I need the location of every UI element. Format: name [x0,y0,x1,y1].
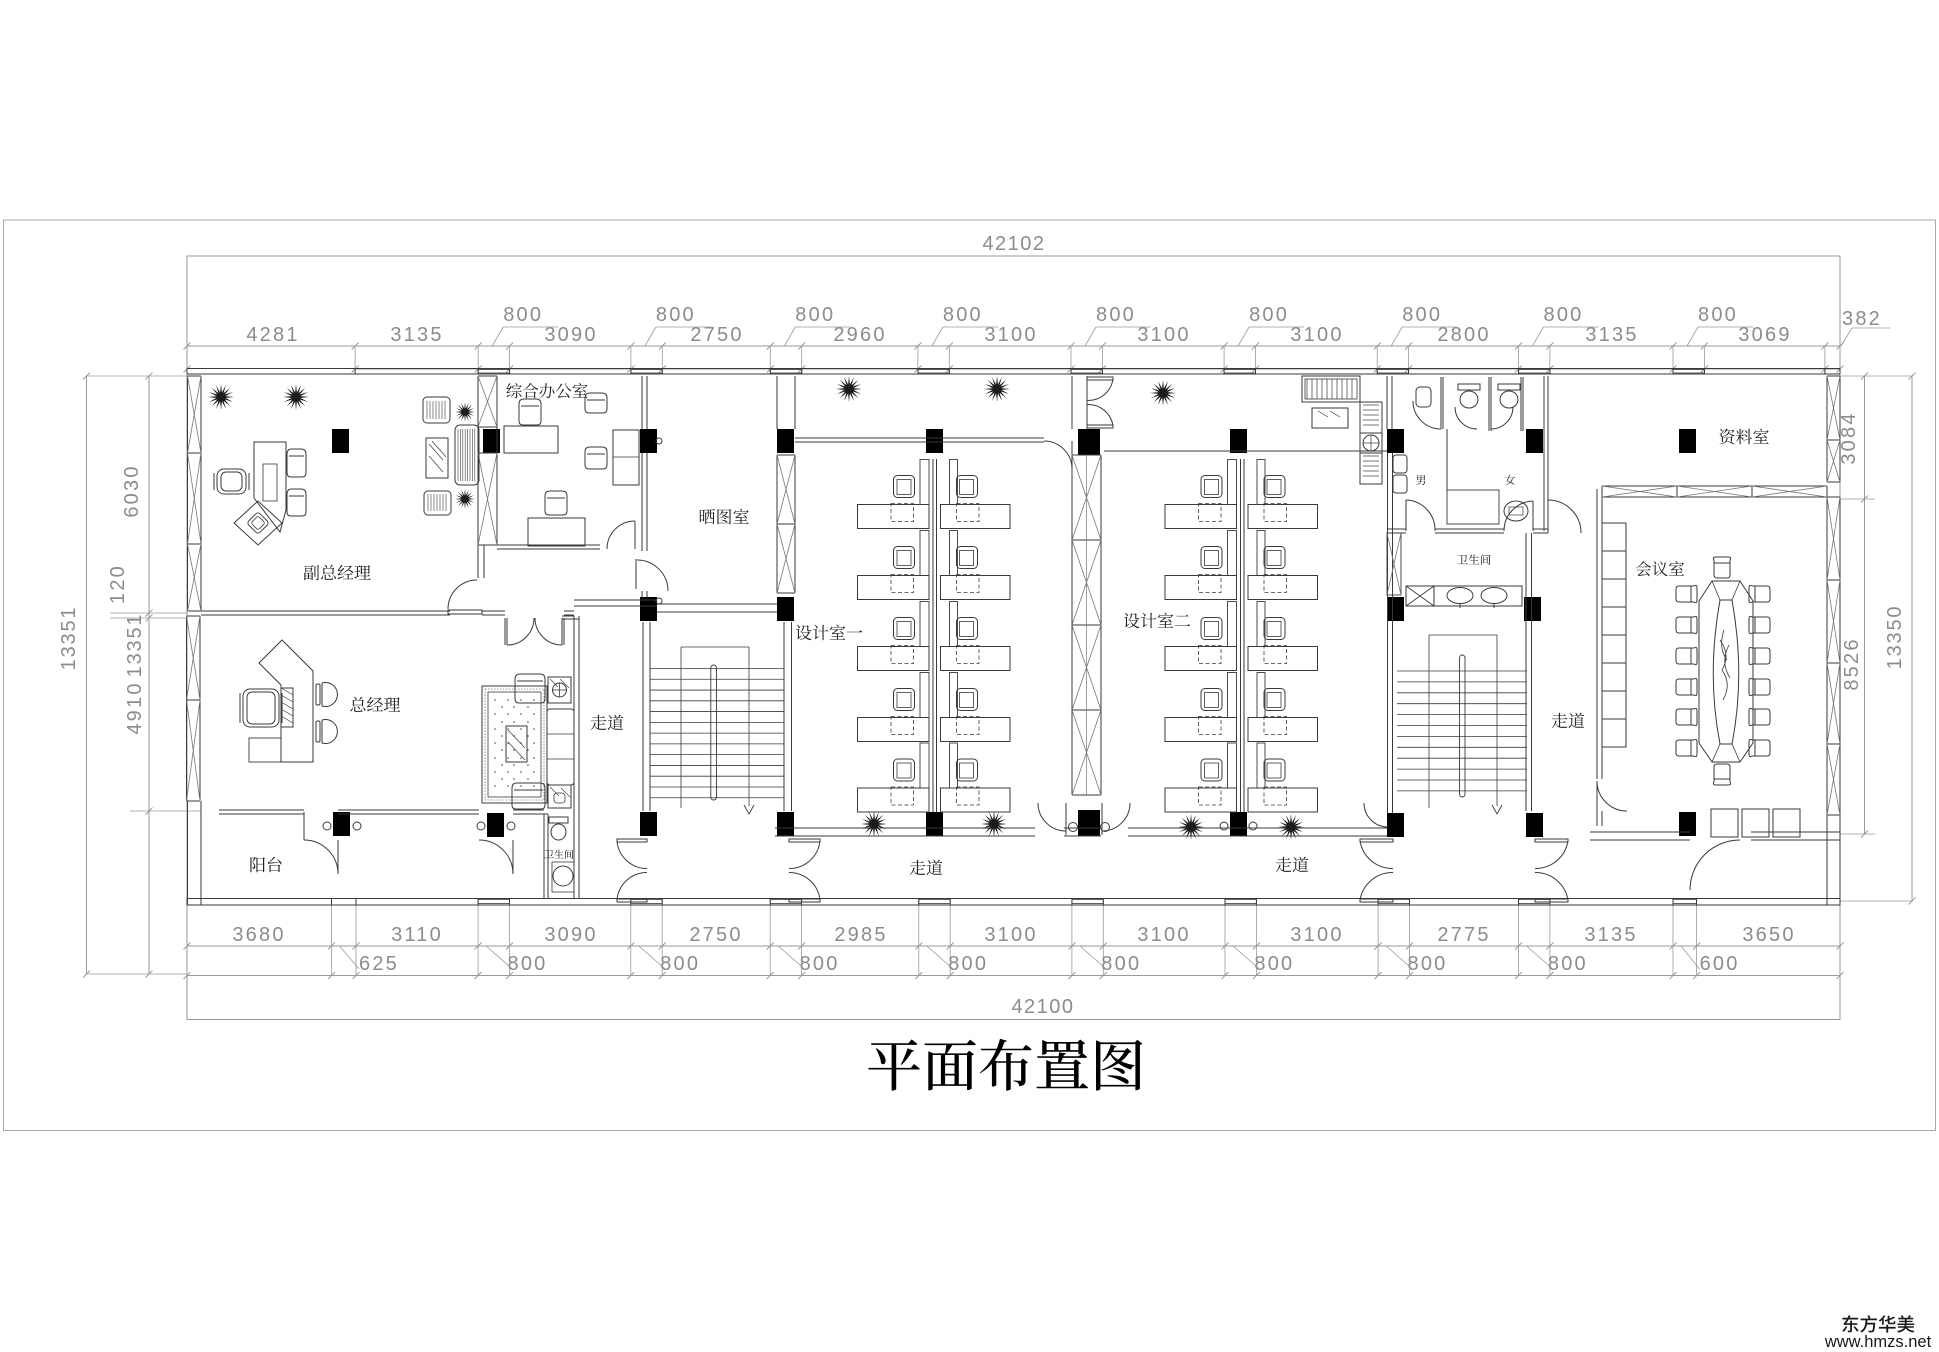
svg-text:800: 800 [1698,304,1738,326]
svg-text:800: 800 [1254,953,1294,975]
svg-text:6030: 6030 [121,464,143,517]
svg-text:4281: 4281 [246,324,299,346]
svg-text:2750: 2750 [689,924,742,946]
svg-text:800: 800 [656,304,696,326]
svg-text:800: 800 [948,953,988,975]
svg-text:800: 800 [1548,953,1588,975]
svg-text:3680: 3680 [232,924,285,946]
svg-text:42100: 42100 [1011,996,1074,1018]
svg-text:4910: 4910 [124,681,146,734]
svg-text:3084: 3084 [1838,411,1860,464]
svg-text:800: 800 [1544,304,1584,326]
svg-text:3110: 3110 [391,924,443,946]
svg-text:120: 120 [107,564,129,604]
svg-text:www.hmzs.net: www.hmzs.net [1824,1333,1932,1351]
svg-text:3650: 3650 [1742,924,1795,946]
svg-text:3100: 3100 [984,924,1037,946]
svg-text:800: 800 [1408,953,1448,975]
svg-text:800: 800 [943,304,983,326]
svg-text:3135: 3135 [1584,924,1637,946]
svg-text:800: 800 [1249,304,1289,326]
svg-text:800: 800 [508,953,548,975]
svg-text:800: 800 [1101,953,1141,975]
svg-text:800: 800 [1402,304,1442,326]
svg-text:625: 625 [359,953,399,975]
svg-text:2985: 2985 [834,924,887,946]
svg-text:42102: 42102 [982,233,1045,255]
svg-text:600: 600 [1700,953,1740,975]
svg-text:3090: 3090 [544,924,597,946]
svg-text:13350: 13350 [1884,605,1906,670]
svg-text:13351: 13351 [58,606,80,671]
svg-text:8526: 8526 [1841,637,1863,690]
svg-text:3100: 3100 [1290,924,1343,946]
svg-text:382: 382 [1842,308,1882,330]
svg-text:800: 800 [503,304,543,326]
svg-text:800: 800 [800,953,840,975]
svg-text:800: 800 [660,953,700,975]
svg-text:3135: 3135 [390,324,443,346]
svg-text:800: 800 [795,304,835,326]
svg-text:3100: 3100 [1137,924,1190,946]
svg-text:13351: 13351 [124,613,146,678]
svg-text:2775: 2775 [1437,924,1490,946]
svg-text:800: 800 [1096,304,1136,326]
